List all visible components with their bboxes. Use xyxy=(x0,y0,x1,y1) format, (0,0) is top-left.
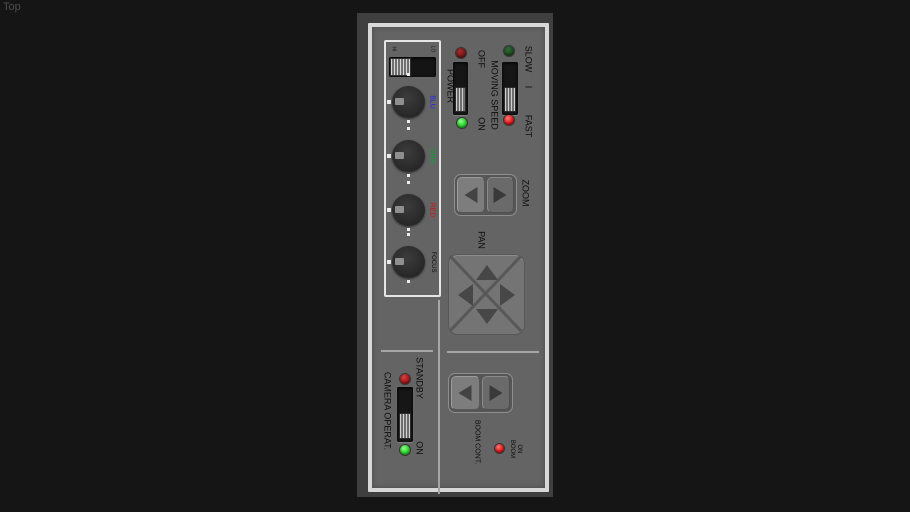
boom-on-led xyxy=(495,444,504,453)
zoom-label: ZOOM xyxy=(521,180,530,207)
control-panel: HI LO BLU GRN RED xyxy=(357,13,553,497)
boom-led-word-2: ON xyxy=(516,445,522,454)
camera-operate-label: CAMERA OPERAT. xyxy=(383,372,392,450)
pan-right-icon[interactable] xyxy=(500,284,515,306)
knob-tick-dot xyxy=(407,174,410,177)
viewport-view-label: Top xyxy=(3,1,21,13)
speed-fast-label: FAST xyxy=(524,115,533,138)
knob-indicator xyxy=(395,98,404,105)
zoom-button-pair xyxy=(454,174,517,216)
camera-standby-led xyxy=(400,374,410,384)
camera-operate-switch[interactable] xyxy=(397,387,413,442)
moving-speed-label: MOVING SPEED xyxy=(490,60,499,130)
knob-tick xyxy=(387,260,391,264)
knob-grn-label: GRN xyxy=(429,148,436,164)
knob-tick-dot xyxy=(407,181,410,184)
speed-slow-led xyxy=(504,46,514,56)
divider-horizontal-right xyxy=(447,351,539,353)
power-off-led xyxy=(456,48,466,58)
power-off-label: OFF xyxy=(477,50,486,68)
boom-right-button[interactable] xyxy=(482,376,511,410)
boom-led-word-1: BOOM xyxy=(509,440,515,458)
knob-tick-dot xyxy=(407,228,410,231)
power-on-label: ON xyxy=(477,117,486,131)
knob-tick-dot xyxy=(407,120,410,123)
switch-handle[interactable] xyxy=(399,413,411,439)
divider-horizontal-left xyxy=(381,350,433,352)
power-switch[interactable] xyxy=(453,62,468,115)
knob-tick xyxy=(387,100,391,104)
speed-mid-label: I xyxy=(524,86,533,89)
camera-on-led xyxy=(400,445,410,455)
right-triangle-icon xyxy=(489,385,502,401)
left-triangle-icon xyxy=(464,187,477,203)
knob-grn[interactable] xyxy=(392,140,425,172)
moving-speed-switch[interactable] xyxy=(502,62,518,115)
knob-red-label: RED xyxy=(429,203,436,218)
boom-left-button[interactable] xyxy=(451,376,480,410)
slider-lo-mark: LO xyxy=(430,46,435,53)
power-on-led xyxy=(457,118,467,128)
pan-down-icon[interactable] xyxy=(476,309,498,324)
left-triangle-icon xyxy=(459,385,472,401)
right-triangle-icon xyxy=(494,187,507,203)
speed-fast-led xyxy=(504,115,514,125)
speed-slow-label: SLOW xyxy=(524,46,533,73)
knob-blu[interactable] xyxy=(392,86,425,118)
knob-tick-dot xyxy=(407,233,410,236)
knob-indicator xyxy=(395,258,404,265)
color-adjust-box: HI LO BLU GRN RED xyxy=(384,40,441,297)
knob-blu-label: BLU xyxy=(429,95,436,109)
pan-label: PAN xyxy=(477,231,486,249)
knob-tick-dot xyxy=(407,280,410,283)
knob-tick xyxy=(387,208,391,212)
knob-tick-dot xyxy=(407,127,410,130)
slider-hi-mark: HI xyxy=(391,47,396,52)
pan-pad[interactable] xyxy=(448,254,525,335)
knob-tick-dot xyxy=(407,73,410,76)
knob-focus[interactable] xyxy=(392,246,425,278)
knob-focus-label: FOCUS xyxy=(430,252,436,273)
pan-up-icon[interactable] xyxy=(476,265,498,280)
zoom-right-button[interactable] xyxy=(487,177,515,213)
knob-tick xyxy=(387,154,391,158)
camera-on-label: ON xyxy=(415,441,424,455)
pan-left-icon[interactable] xyxy=(458,284,473,306)
camera-standby-label: STANDBY xyxy=(415,357,424,399)
knob-indicator xyxy=(395,206,404,213)
divider-vertical xyxy=(438,300,440,494)
boom-cont-label: BOOM CONT. xyxy=(474,420,481,464)
boom-button-pair xyxy=(448,373,513,413)
switch-handle[interactable] xyxy=(455,87,466,112)
switch-handle[interactable] xyxy=(504,87,516,112)
viewport: { "viewport": { "view_label": "Top" }, "… xyxy=(0,0,910,512)
level-slider[interactable] xyxy=(389,57,436,77)
knob-red[interactable] xyxy=(392,194,425,226)
knob-indicator xyxy=(395,152,404,159)
zoom-left-button[interactable] xyxy=(457,177,485,213)
